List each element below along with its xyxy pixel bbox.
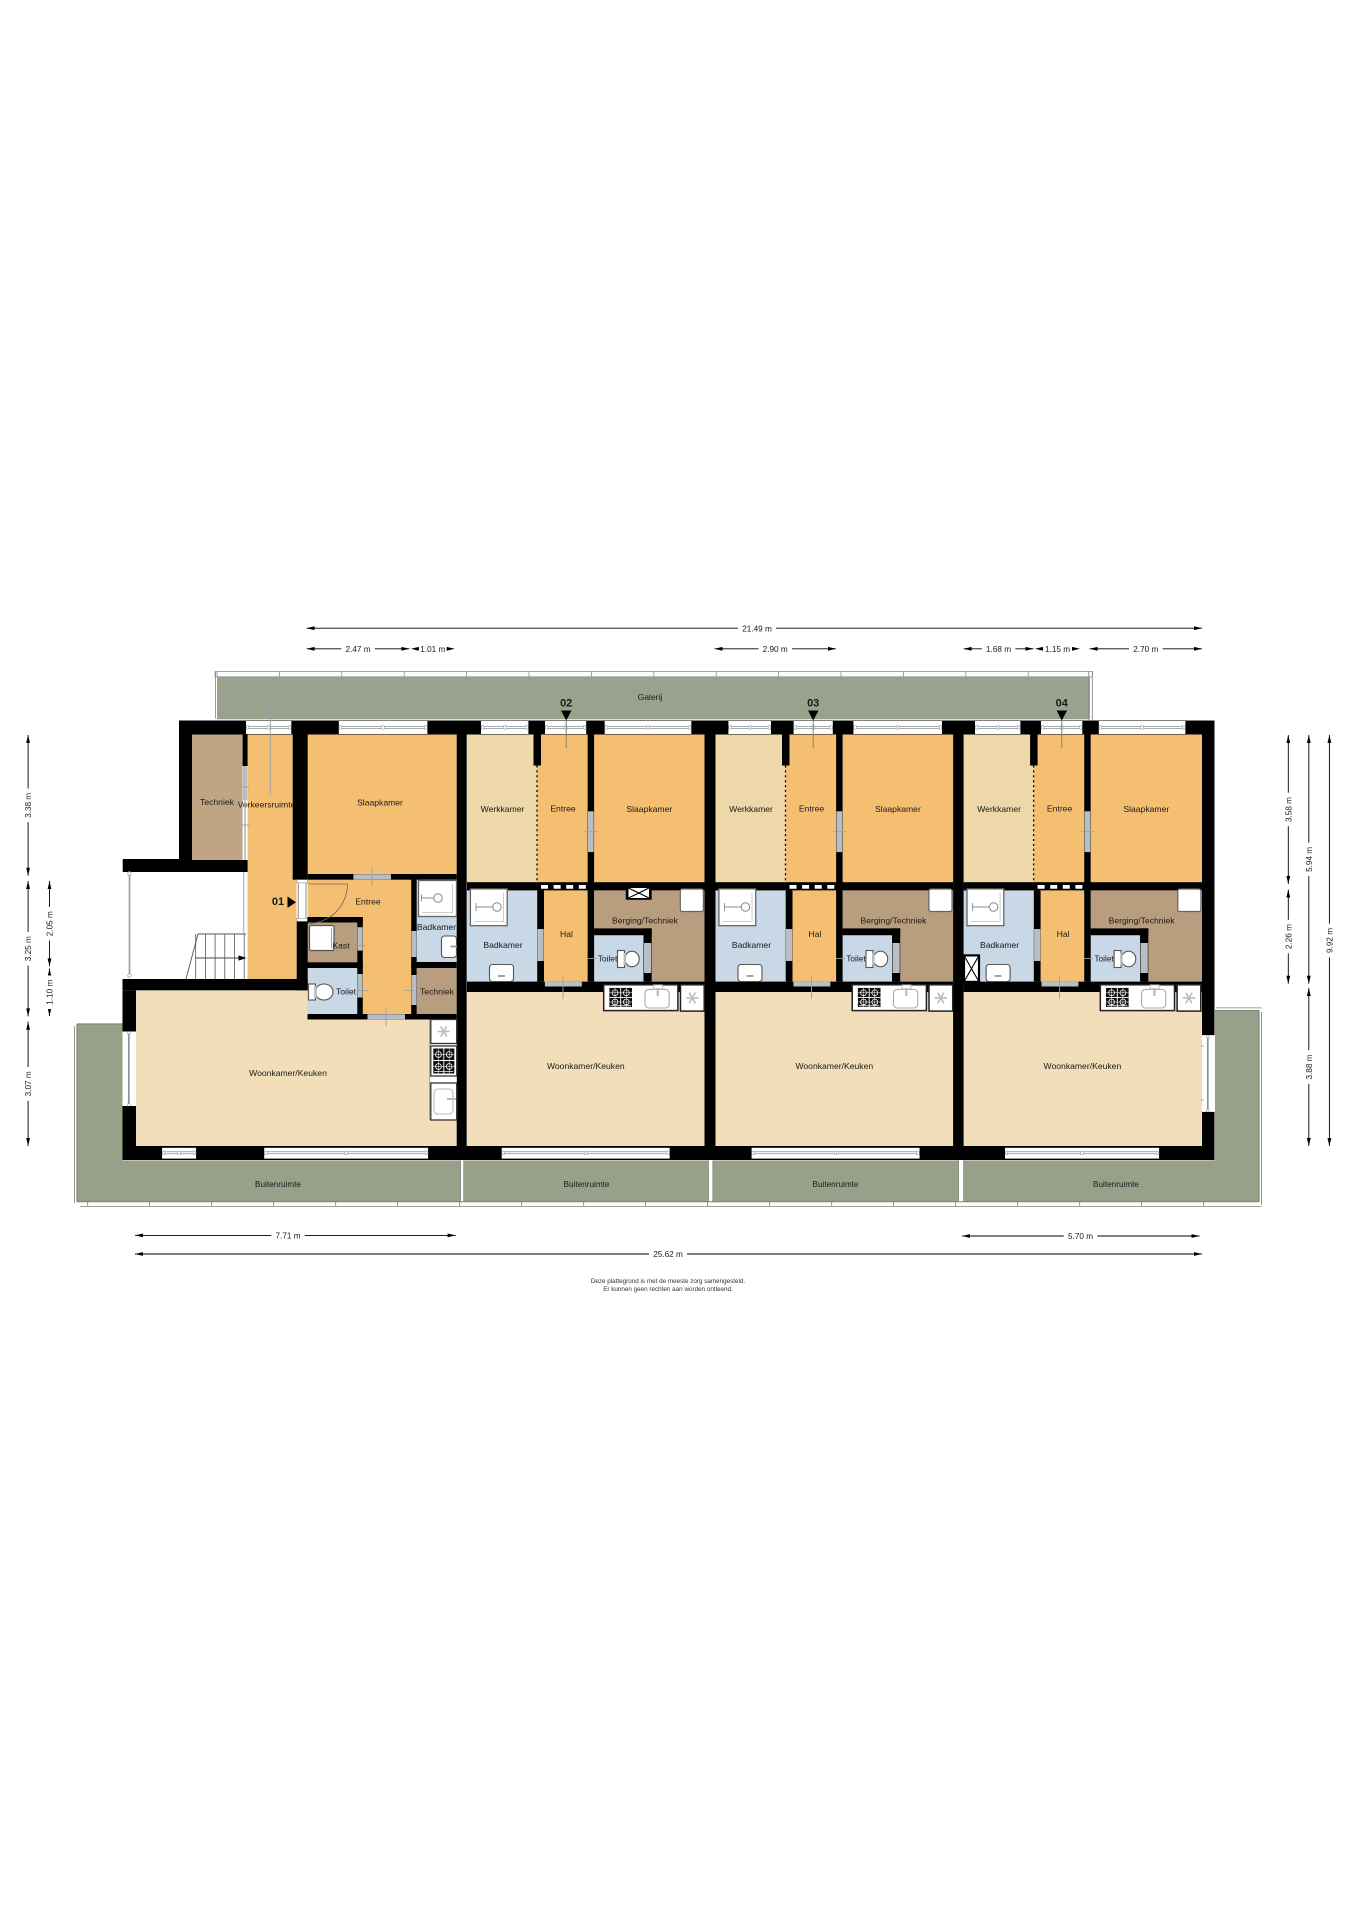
svg-text:3.58 m: 3.58 m bbox=[1284, 797, 1293, 822]
svg-text:01: 01 bbox=[272, 896, 284, 908]
svg-text:02: 02 bbox=[560, 698, 572, 710]
svg-text:2.90 m: 2.90 m bbox=[763, 645, 788, 654]
svg-text:03: 03 bbox=[807, 698, 819, 710]
svg-text:Techniek: Techniek bbox=[420, 987, 455, 997]
svg-text:7.71 m: 7.71 m bbox=[275, 1232, 300, 1241]
svg-text:Badkamer: Badkamer bbox=[417, 922, 456, 932]
svg-text:3.88 m: 3.88 m bbox=[1305, 1054, 1314, 1079]
svg-text:2.47 m: 2.47 m bbox=[345, 645, 370, 654]
svg-text:Slaapkamer: Slaapkamer bbox=[357, 798, 403, 808]
svg-text:Berging/Techniek: Berging/Techniek bbox=[861, 916, 928, 926]
svg-text:3.25 m: 3.25 m bbox=[24, 936, 33, 961]
svg-text:Slaapkamer: Slaapkamer bbox=[1123, 804, 1169, 814]
svg-text:Werkkamer: Werkkamer bbox=[481, 804, 525, 814]
svg-text:Entree: Entree bbox=[550, 804, 576, 814]
svg-text:Deze plattegrond is met de mee: Deze plattegrond is met de meeste zorg s… bbox=[591, 1278, 746, 1285]
svg-text:25.62 m: 25.62 m bbox=[653, 1250, 683, 1259]
svg-text:Buitenruimte: Buitenruimte bbox=[813, 1180, 859, 1189]
svg-text:Kast: Kast bbox=[332, 941, 350, 951]
svg-text:2.70 m: 2.70 m bbox=[1133, 645, 1158, 654]
svg-text:Badkamer: Badkamer bbox=[732, 940, 771, 950]
svg-text:Buitenruimte: Buitenruimte bbox=[1093, 1180, 1139, 1189]
svg-text:Galerij: Galerij bbox=[638, 692, 663, 702]
svg-text:Badkamer: Badkamer bbox=[980, 940, 1019, 950]
svg-text:Badkamer: Badkamer bbox=[483, 940, 522, 950]
svg-text:Berging/Techniek: Berging/Techniek bbox=[612, 916, 679, 926]
svg-text:Woonkamer/Keuken: Woonkamer/Keuken bbox=[547, 1061, 625, 1071]
svg-text:5.94 m: 5.94 m bbox=[1305, 847, 1314, 872]
svg-text:Toilet: Toilet bbox=[336, 987, 357, 997]
svg-text:Hal: Hal bbox=[1057, 929, 1070, 939]
svg-text:Buitenruimte: Buitenruimte bbox=[255, 1180, 301, 1189]
svg-text:9.92 m: 9.92 m bbox=[1326, 928, 1335, 953]
svg-text:Buitenruimte: Buitenruimte bbox=[564, 1180, 610, 1189]
svg-text:Verkeersruimte: Verkeersruimte bbox=[238, 800, 296, 810]
svg-text:21.49 m: 21.49 m bbox=[742, 624, 772, 633]
svg-text:1.10 m: 1.10 m bbox=[46, 980, 55, 1005]
svg-text:1.01 m: 1.01 m bbox=[420, 645, 445, 654]
svg-text:Werkkamer: Werkkamer bbox=[977, 804, 1021, 814]
svg-text:1.15 m: 1.15 m bbox=[1045, 645, 1070, 654]
svg-text:2.26 m: 2.26 m bbox=[1284, 924, 1293, 949]
svg-text:Slaapkamer: Slaapkamer bbox=[875, 804, 921, 814]
svg-text:3.07 m: 3.07 m bbox=[24, 1071, 33, 1096]
svg-text:Entree: Entree bbox=[799, 804, 825, 814]
svg-text:2.05 m: 2.05 m bbox=[46, 911, 55, 936]
svg-text:Toilet: Toilet bbox=[1094, 954, 1114, 964]
svg-text:Werkkamer: Werkkamer bbox=[729, 804, 773, 814]
svg-text:Woonkamer/Keuken: Woonkamer/Keuken bbox=[249, 1068, 327, 1078]
svg-text:3.38 m: 3.38 m bbox=[24, 793, 33, 818]
svg-text:Hal: Hal bbox=[809, 929, 822, 939]
svg-text:Berging/Techniek: Berging/Techniek bbox=[1109, 916, 1176, 926]
svg-text:Er kunnen geen rechten aan wor: Er kunnen geen rechten aan worden ontlee… bbox=[603, 1286, 733, 1293]
svg-text:Toilet: Toilet bbox=[598, 954, 618, 964]
svg-text:Woonkamer/Keuken: Woonkamer/Keuken bbox=[795, 1061, 873, 1071]
svg-text:Woonkamer/Keuken: Woonkamer/Keuken bbox=[1044, 1061, 1122, 1071]
svg-text:Hal: Hal bbox=[560, 929, 573, 939]
svg-text:1.68 m: 1.68 m bbox=[986, 645, 1011, 654]
svg-text:Techniek: Techniek bbox=[200, 797, 235, 807]
svg-text:Slaapkamer: Slaapkamer bbox=[626, 804, 672, 814]
svg-text:04: 04 bbox=[1056, 698, 1069, 710]
svg-text:Entree: Entree bbox=[1047, 804, 1073, 814]
svg-text:Entree: Entree bbox=[355, 897, 381, 907]
svg-text:Toilet: Toilet bbox=[846, 954, 866, 964]
svg-text:5.70 m: 5.70 m bbox=[1068, 1232, 1093, 1241]
